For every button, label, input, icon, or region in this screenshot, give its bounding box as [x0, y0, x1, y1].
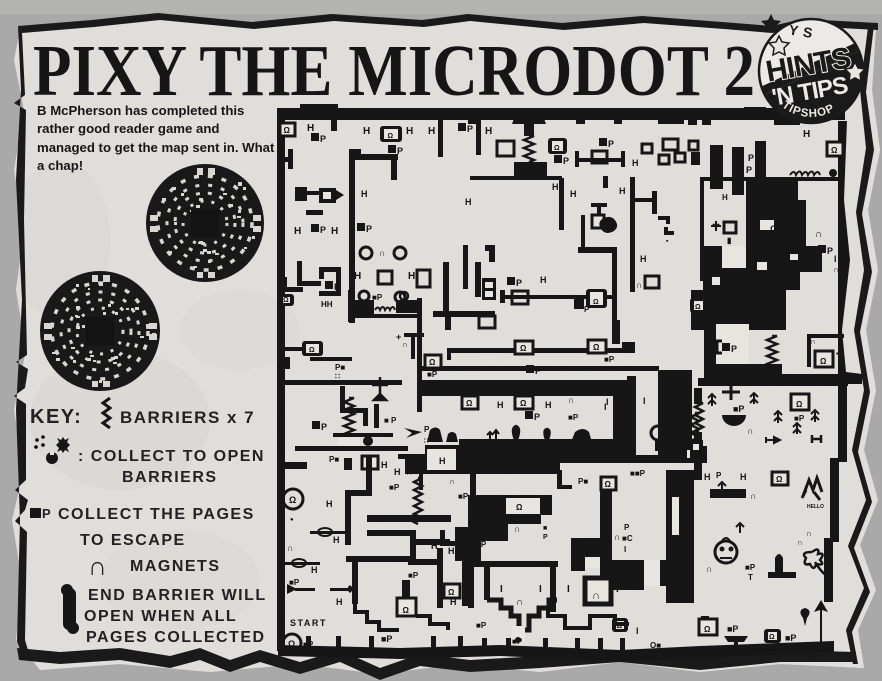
svg-text:H: H — [311, 565, 318, 575]
svg-text:H: H — [497, 400, 504, 410]
svg-text:P■: P■ — [329, 455, 339, 464]
svg-text:Ω: Ω — [593, 299, 599, 306]
svg-text:H: H — [450, 597, 457, 607]
svg-text:H: H — [439, 456, 446, 466]
svg-text:MAGNETS: MAGNETS — [130, 558, 221, 575]
svg-text:OPEN WHEN ALL: OPEN WHEN ALL — [84, 608, 237, 625]
svg-text:I: I — [567, 584, 570, 595]
svg-text:∷: ∷ — [424, 438, 429, 445]
svg-text:∩: ∩ — [379, 248, 386, 258]
svg-text:■P: ■P — [512, 637, 523, 646]
svg-text:H: H — [354, 271, 361, 282]
svg-text:■P: ■P — [794, 414, 805, 423]
svg-text:I: I — [643, 396, 646, 406]
svg-text:H: H — [428, 126, 435, 137]
svg-text:∩: ∩ — [806, 529, 812, 538]
svg-text:Ω: Ω — [704, 625, 711, 634]
svg-text:●: ● — [290, 517, 294, 523]
svg-text:I: I — [604, 402, 607, 412]
svg-text:■P: ■P — [476, 621, 487, 630]
svg-text:Ω: Ω — [605, 480, 612, 489]
svg-text:Ω: Ω — [769, 634, 775, 641]
svg-text:■P: ■P — [727, 624, 738, 634]
svg-text:▮: ▮ — [727, 236, 731, 245]
svg-text:H: H — [363, 126, 370, 137]
svg-text:P: P — [516, 278, 522, 288]
svg-text:H: H — [333, 535, 340, 545]
svg-text:P: P — [748, 153, 754, 163]
svg-text:TO ESCAPE: TO ESCAPE — [80, 532, 186, 549]
svg-text:H: H — [640, 254, 647, 264]
svg-text:H: H — [632, 158, 639, 168]
svg-text:COLLECT THE PAGES: COLLECT THE PAGES — [58, 506, 255, 523]
svg-text:I: I — [624, 545, 626, 554]
svg-text:Ω: Ω — [448, 588, 455, 597]
svg-text:H: H — [722, 193, 728, 202]
svg-text:P: P — [543, 534, 548, 541]
svg-text:BARRIERS: BARRIERS — [122, 469, 218, 486]
svg-text:■P: ■P — [408, 571, 419, 580]
svg-text:■P: ■P — [783, 246, 794, 255]
svg-text:Ω: Ω — [284, 126, 291, 135]
svg-text:∩: ∩ — [706, 564, 713, 574]
svg-text:H: H — [619, 186, 626, 196]
svg-text:Ω: Ω — [593, 343, 600, 352]
svg-text:H: H — [810, 263, 817, 274]
svg-text:■ P: ■ P — [384, 416, 397, 425]
svg-text:H: H — [431, 541, 438, 551]
svg-text:H: H — [336, 597, 343, 607]
svg-text:Ω: Ω — [283, 297, 289, 304]
svg-text:∩: ∩ — [88, 551, 108, 581]
svg-text:Ω: Ω — [554, 145, 560, 152]
svg-text:Ω: Ω — [288, 639, 295, 649]
svg-text:PIXY THE MICRODOT 2: PIXY THE MICRODOT 2 — [33, 30, 755, 111]
svg-text:HH: HH — [321, 300, 333, 309]
svg-text:■P: ■P — [604, 355, 615, 364]
svg-text:■P: ■P — [568, 413, 579, 422]
svg-text:P: P — [563, 156, 569, 166]
svg-text:START: START — [290, 618, 327, 628]
svg-text:H: H — [394, 467, 401, 477]
svg-text:H: H — [803, 129, 810, 140]
svg-text:H: H — [552, 182, 559, 192]
svg-text:I: I — [616, 584, 619, 595]
svg-text:P: P — [320, 225, 326, 235]
svg-text:H: H — [331, 226, 338, 237]
svg-text:Ω: Ω — [520, 399, 527, 408]
svg-text:Ω: Ω — [403, 606, 410, 615]
svg-text:KEY:: KEY: — [30, 406, 82, 428]
svg-text:H: H — [307, 123, 314, 134]
svg-text:P: P — [334, 282, 340, 292]
svg-text:Ω: Ω — [309, 347, 315, 354]
svg-text:P■: P■ — [578, 477, 588, 486]
svg-text:H: H — [416, 455, 423, 465]
svg-text:Ω: Ω — [820, 357, 827, 366]
svg-text:■P: ■P — [427, 370, 438, 379]
svg-text:+: + — [396, 332, 401, 342]
svg-text:Ω: Ω — [796, 400, 803, 409]
svg-text:■■P: ■■P — [630, 469, 646, 478]
svg-text:∩: ∩ — [592, 590, 600, 602]
svg-text:∩: ∩ — [514, 524, 521, 534]
svg-text:■P: ■P — [745, 563, 756, 572]
svg-text:P: P — [320, 134, 326, 144]
svg-text:H: H — [545, 400, 552, 410]
svg-text:∩: ∩ — [614, 532, 621, 542]
svg-text:Ω: Ω — [388, 133, 394, 140]
svg-text:H: H — [740, 472, 747, 482]
svg-text:■P: ■P — [458, 492, 469, 501]
svg-text:H: H — [570, 189, 577, 199]
svg-text:P■: P■ — [335, 363, 345, 372]
svg-text:HELLO: HELLO — [807, 504, 824, 510]
svg-text:P: P — [608, 139, 614, 149]
svg-text:Ω: Ω — [831, 146, 838, 155]
svg-text:▪: ▪ — [836, 349, 839, 358]
svg-text:H: H — [361, 189, 368, 199]
svg-text:a chap!: a chap! — [37, 158, 83, 173]
svg-text:Ω: Ω — [516, 503, 523, 512]
svg-text:P: P — [366, 224, 372, 234]
svg-text:∩: ∩ — [406, 467, 413, 477]
svg-text:I: I — [500, 584, 503, 595]
svg-text:H: H — [326, 499, 333, 509]
svg-text:∩: ∩ — [449, 477, 455, 486]
svg-text:■P: ■P — [785, 633, 796, 643]
svg-text:END BARRIER WILL: END BARRIER WILL — [88, 587, 267, 604]
svg-text:P: P — [731, 344, 737, 354]
svg-text:∷: ∷ — [335, 372, 340, 381]
svg-text:∩: ∩ — [815, 229, 822, 240]
svg-text:H: H — [540, 275, 547, 285]
svg-text:P: P — [321, 422, 327, 432]
svg-text:Ω: Ω — [776, 475, 783, 484]
svg-text:H: H — [465, 197, 472, 207]
svg-text:H: H — [704, 472, 711, 482]
svg-text:∩: ∩ — [568, 395, 575, 405]
svg-text:∩: ∩ — [797, 538, 803, 547]
svg-text:∩: ∩ — [516, 597, 523, 608]
svg-text:■: ■ — [543, 525, 547, 532]
svg-text:H: H — [294, 226, 301, 237]
svg-text:P: P — [534, 412, 540, 422]
svg-text:∩: ∩ — [287, 543, 294, 553]
svg-text:I: I — [539, 584, 542, 595]
svg-text:∩: ∩ — [810, 337, 816, 346]
svg-text:T: T — [748, 573, 753, 582]
svg-text:P: P — [467, 124, 473, 134]
svg-text:P: P — [669, 442, 675, 451]
svg-text:Ω: Ω — [520, 344, 527, 353]
svg-text:P: P — [624, 523, 630, 532]
svg-text:O■: O■ — [650, 641, 661, 650]
svg-text:H: H — [406, 126, 413, 137]
svg-text:∩: ∩ — [747, 426, 754, 436]
svg-text:■P: ■P — [381, 634, 392, 644]
svg-text:B McPherson has completed this: B McPherson has completed this — [37, 103, 244, 118]
svg-text:H: H — [408, 271, 415, 282]
svg-text:■P: ■P — [733, 404, 744, 414]
svg-text:managed to get the map sent in: managed to get the map sent in. What — [37, 140, 275, 155]
svg-text:∩: ∩ — [750, 491, 757, 501]
svg-text:: COLLECT TO OPEN: : COLLECT TO OPEN — [78, 448, 265, 465]
svg-text:∩: ∩ — [402, 340, 408, 349]
svg-text:PAGES COLLECTED: PAGES COLLECTED — [86, 629, 266, 646]
svg-text:P: P — [535, 366, 541, 376]
svg-text:P: P — [827, 246, 833, 256]
svg-text:I: I — [834, 254, 837, 264]
svg-text:H: H — [448, 546, 455, 556]
svg-text:■C: ■C — [622, 534, 633, 543]
svg-text:∩: ∩ — [833, 265, 839, 274]
svg-text:BARRIERS x 7: BARRIERS x 7 — [120, 408, 255, 427]
svg-text:Ω: Ω — [466, 399, 473, 408]
svg-text:I: I — [636, 626, 639, 636]
svg-text:Ω: Ω — [695, 304, 701, 311]
svg-text:P: P — [42, 506, 52, 521]
svg-text:■P: ■P — [389, 483, 400, 492]
svg-text:H: H — [485, 126, 492, 137]
svg-text:P: P — [424, 425, 430, 434]
svg-text:Ω: Ω — [429, 358, 436, 367]
svg-text:P: P — [746, 165, 752, 175]
svg-text:P: P — [716, 471, 722, 480]
svg-text:Ω: Ω — [289, 495, 296, 505]
svg-text:∩: ∩ — [636, 280, 643, 290]
svg-text:Ω: Ω — [770, 224, 777, 234]
svg-text:■P: ■P — [289, 578, 300, 587]
svg-text:H: H — [381, 460, 388, 470]
svg-text:rather good reader game and: rather good reader game and — [37, 121, 219, 136]
